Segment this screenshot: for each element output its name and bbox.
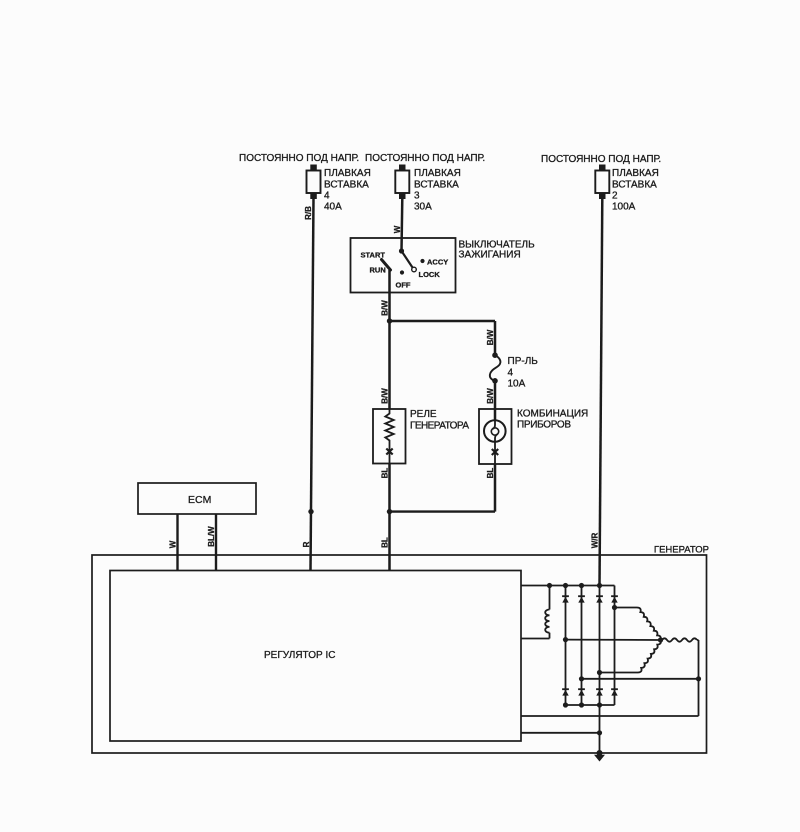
svg-text:30А: 30А [414, 202, 432, 213]
svg-text:ПЛАВКАЯ: ПЛАВКАЯ [324, 168, 371, 179]
svg-text:R: R [302, 541, 311, 547]
svg-text:ACCY: ACCY [427, 258, 448, 267]
svg-text:LOCK: LOCK [419, 270, 441, 279]
svg-text:ГЕНЕРАТОРА: ГЕНЕРАТОРА [410, 421, 469, 432]
svg-text:B/W: B/W [486, 329, 495, 345]
svg-text:START: START [361, 251, 386, 260]
svg-text:ВСТАВКА: ВСТАВКА [414, 180, 459, 191]
svg-text:W/R: W/R [591, 533, 600, 549]
svg-text:BL: BL [486, 468, 495, 479]
svg-text:КОМБИНАЦИЯ: КОМБИНАЦИЯ [517, 409, 588, 420]
svg-text:B/W: B/W [486, 388, 495, 404]
svg-text:ПОСТОЯННО ПОД НАПР.: ПОСТОЯННО ПОД НАПР. [239, 153, 359, 164]
svg-text:B/W: B/W [381, 300, 390, 316]
svg-text:ПЛАВКАЯ: ПЛАВКАЯ [414, 168, 461, 179]
svg-text:OFF: OFF [396, 281, 411, 290]
svg-text:ПРИБОРОВ: ПРИБОРОВ [517, 420, 571, 431]
svg-text:ПОСТОЯННО ПОД НАПР.: ПОСТОЯННО ПОД НАПР. [541, 154, 661, 165]
svg-text:ПР-ЛЬ: ПР-ЛЬ [508, 356, 539, 367]
svg-text:W: W [393, 225, 402, 233]
svg-text:BL: BL [381, 537, 390, 548]
svg-text:BL/W: BL/W [207, 526, 216, 547]
svg-text:ГЕНЕРАТОР: ГЕНЕРАТОР [654, 545, 709, 556]
svg-text:4: 4 [324, 191, 330, 202]
svg-text:3: 3 [414, 191, 420, 202]
svg-text:W: W [169, 540, 178, 548]
svg-text:ПЛАВКАЯ: ПЛАВКАЯ [612, 168, 659, 179]
svg-text:РЕЛЕ: РЕЛЕ [410, 409, 437, 420]
svg-text:ЗАЖИГАНИЯ: ЗАЖИГАНИЯ [459, 250, 521, 261]
svg-text:4: 4 [508, 368, 514, 379]
svg-text:40А: 40А [324, 202, 342, 213]
svg-text:R/B: R/B [304, 206, 313, 220]
svg-text:100А: 100А [612, 202, 636, 213]
svg-text:ПОСТОЯННО ПОД НАПР.: ПОСТОЯННО ПОД НАПР. [365, 153, 485, 164]
svg-text:BL: BL [381, 468, 390, 479]
svg-text:B/W: B/W [381, 388, 390, 404]
svg-text:ECM: ECM [188, 494, 211, 506]
svg-text:RUN: RUN [370, 266, 386, 275]
svg-text:РЕГУЛЯТОР IC: РЕГУЛЯТОР IC [264, 650, 335, 661]
svg-text:2: 2 [612, 191, 618, 202]
svg-text:ВСТАВКА: ВСТАВКА [612, 180, 657, 191]
svg-text:ВСТАВКА: ВСТАВКА [324, 180, 369, 191]
svg-text:10А: 10А [508, 379, 526, 390]
